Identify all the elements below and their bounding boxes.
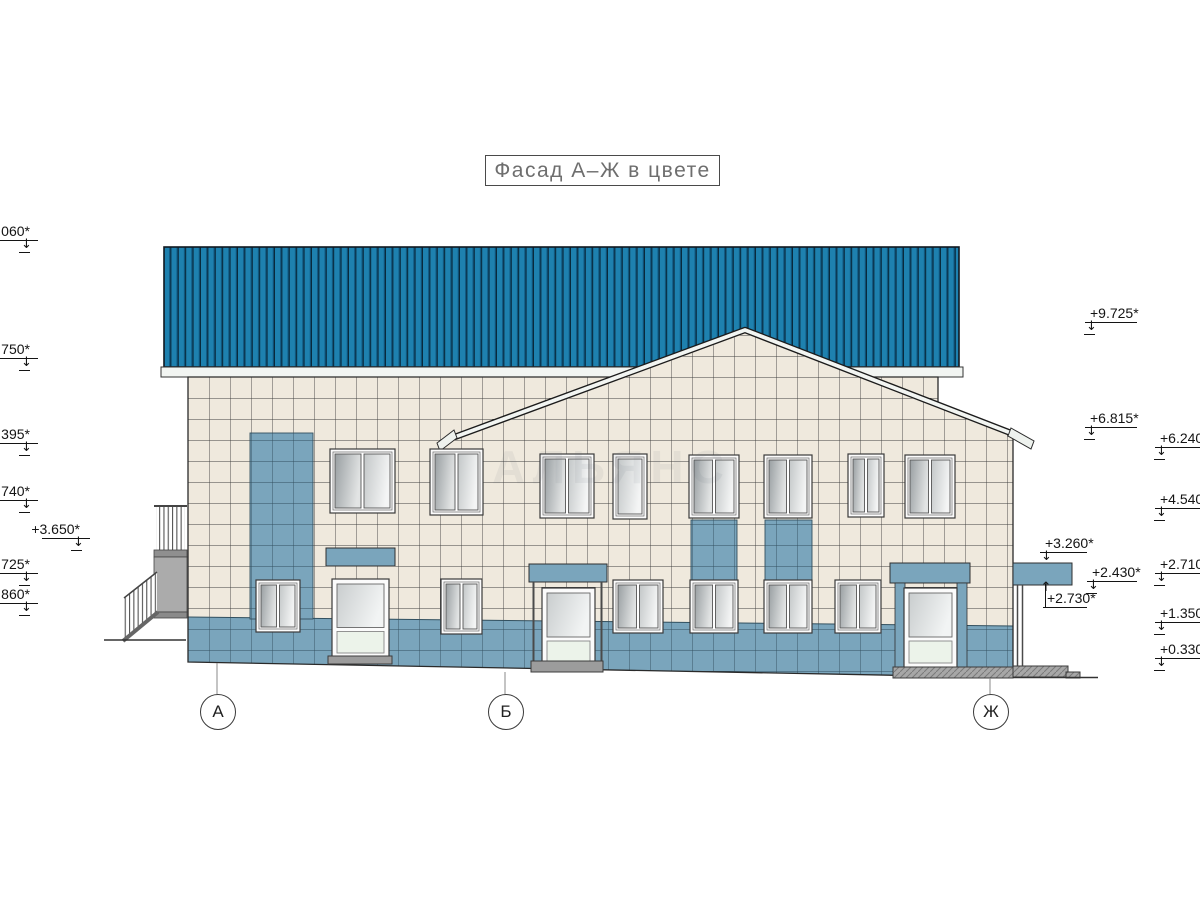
elevation-mark: .725* ↓ bbox=[0, 556, 38, 590]
elevation-mark: +0.330* ↓ bbox=[1155, 641, 1200, 675]
drawing-title-box: Фасад А–Ж в цвете bbox=[485, 155, 720, 186]
elevation-mark: +4.540* ↓ bbox=[1155, 491, 1200, 525]
window-double bbox=[764, 455, 812, 518]
window-double bbox=[848, 454, 884, 517]
window-double bbox=[764, 580, 812, 633]
window-double bbox=[441, 579, 482, 634]
drawing-title: Фасад А–Ж в цвете bbox=[494, 159, 710, 183]
window-double bbox=[613, 580, 663, 633]
axis-bubble-a: А bbox=[200, 694, 236, 730]
entrance-door bbox=[904, 588, 957, 668]
elevation-mark: .860* ↓ bbox=[0, 586, 38, 620]
watermark: АЛЬЯНС bbox=[492, 440, 731, 494]
axis-bubble-b: Б bbox=[488, 694, 524, 730]
entrance-door bbox=[332, 579, 389, 658]
elevation-mark: +3.260* ↓ bbox=[1040, 535, 1087, 569]
accent-strip bbox=[691, 520, 737, 581]
window-double bbox=[690, 580, 738, 633]
window-double bbox=[905, 455, 955, 518]
elevation-mark: .395* ↓ bbox=[0, 426, 38, 460]
elevation-mark: +6.240* ↓ bbox=[1155, 430, 1200, 464]
elevation-mark: .060* ↓ bbox=[0, 223, 38, 257]
facade-drawing-canvas: АЛЬЯНС Фасад А–Ж в цвете .060* ↓ .750* ↓… bbox=[0, 0, 1200, 900]
elevation-mark: +2.710* ↓ bbox=[1155, 556, 1200, 590]
elevation-mark: +9.725* ↓ bbox=[1085, 305, 1137, 339]
elevation-mark: +3.650* ↓ bbox=[42, 521, 90, 555]
entrance-door bbox=[542, 588, 595, 668]
elevation-mark: .750* ↓ bbox=[0, 341, 38, 375]
elevation-mark: .740* ↓ bbox=[0, 483, 38, 517]
elevation-mark: +6.815* ↓ bbox=[1085, 410, 1137, 444]
window-double bbox=[430, 449, 483, 515]
elevation-mark: +2.730* ↑ bbox=[1043, 590, 1087, 624]
staircase bbox=[123, 506, 187, 641]
elevation-mark: +1.350* ↓ bbox=[1155, 605, 1200, 639]
window-double bbox=[330, 449, 395, 513]
window-double bbox=[835, 580, 881, 633]
window-double bbox=[256, 580, 300, 632]
accent-strip bbox=[765, 520, 812, 581]
main-roof bbox=[161, 247, 963, 377]
axis-bubble-zh: Ж bbox=[973, 694, 1009, 730]
